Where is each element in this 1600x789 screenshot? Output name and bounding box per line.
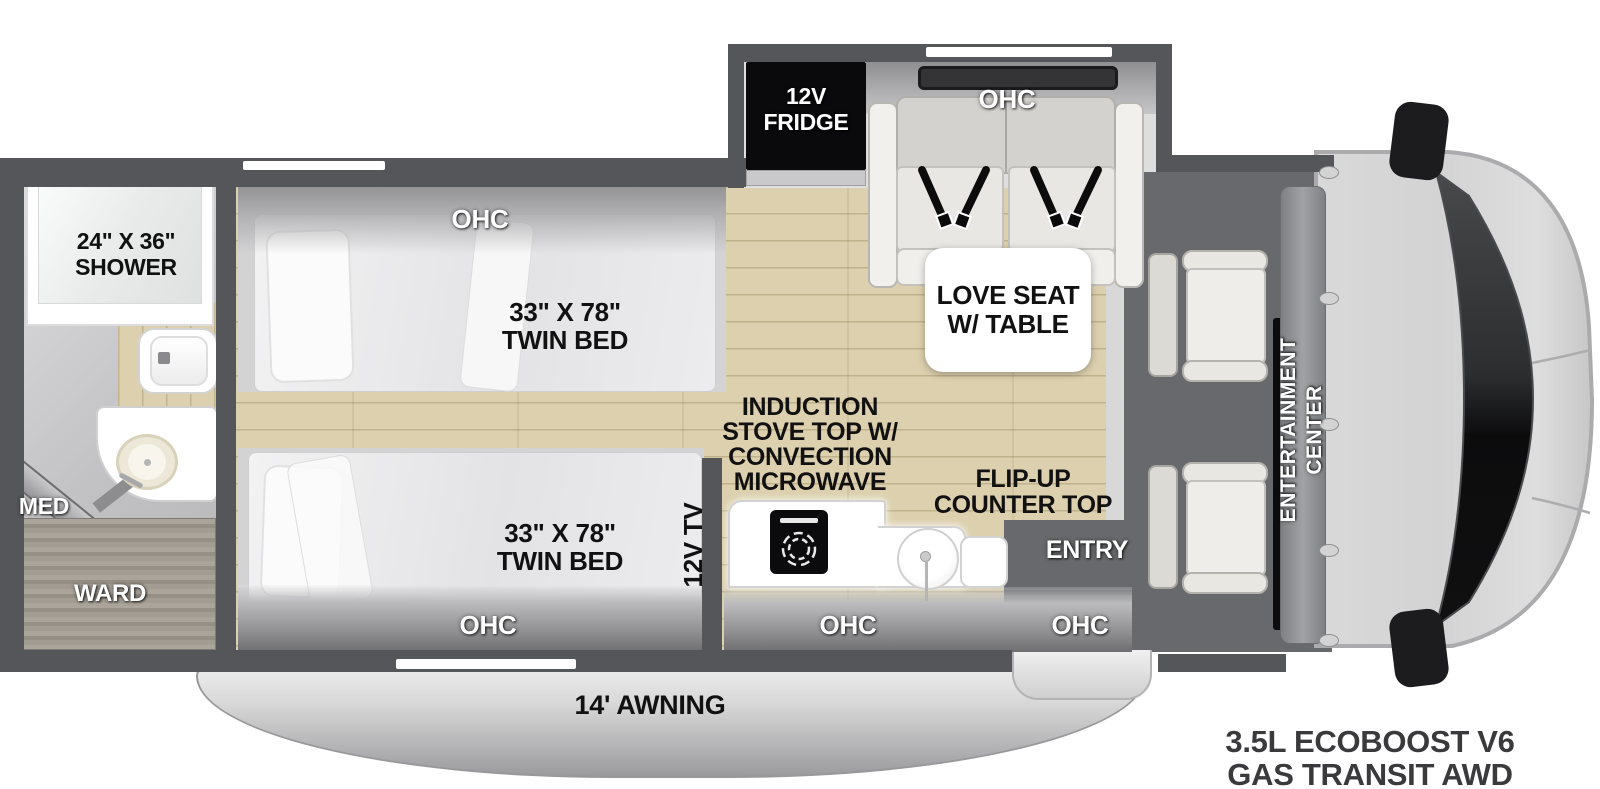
kitchen-faucet-stem [925, 561, 928, 601]
twin-bed-bottom-label: 33" X 78" TWIN BED [425, 519, 695, 575]
side-mirror-bottom-icon [1388, 607, 1451, 689]
windshield [1436, 172, 1533, 626]
wall-bathroom [216, 158, 236, 672]
window-top [243, 161, 385, 170]
window-bottom [396, 659, 576, 669]
passenger-seat-armrest [1182, 572, 1268, 594]
shower-label: 24" X 36" SHOWER [46, 228, 206, 280]
side-mirror-top-icon [1388, 100, 1451, 182]
flip-up-counter [960, 536, 1008, 588]
passenger-seat-back [1148, 465, 1178, 589]
entry-step [1012, 650, 1152, 700]
induction-stove-label: INDUCTION STOVE TOP W/ CONVECTION MICROW… [685, 395, 935, 495]
hood-seam-lower [1532, 498, 1590, 513]
rv-floorplan: LOVE SEAT W/ TABLE OHC OHC OHC OHC OHC 3… [0, 0, 1600, 789]
ohc-label-top-bed: OHC [435, 204, 525, 235]
love-seat-label: LOVE SEAT W/ TABLE [937, 281, 1080, 339]
slideout-wall-left [728, 44, 744, 188]
tv-label: 12V TV [678, 445, 706, 645]
seat-belt-icons [860, 140, 1160, 235]
entertainment-center-label: ENTERTAINMENT CENTER [1276, 212, 1330, 648]
wall-top-front [1156, 155, 1334, 172]
stove-burner-icon [770, 510, 828, 574]
driver-seat [1186, 268, 1266, 364]
driver-seat-armrest [1182, 360, 1268, 382]
engine-label: 3.5L ECOBOOST V6 GAS TRANSIT AWD [1180, 725, 1560, 789]
ohc-label-entry: OHC [1035, 610, 1125, 641]
passenger-seat [1186, 480, 1266, 576]
ohc-label-kitchen: OHC [803, 610, 893, 641]
fridge-label: 12V FRIDGE [746, 83, 866, 135]
hood-seam-upper [1532, 350, 1591, 363]
entry-label: ENTRY [1027, 536, 1147, 565]
slideout-wall-right [1156, 44, 1172, 172]
love-seat-table: LOVE SEAT W/ TABLE [925, 248, 1091, 372]
hinge-icon [1319, 166, 1339, 179]
twin-bed-top-label: 33" X 78" TWIN BED [430, 298, 700, 354]
wall-rear [0, 158, 24, 672]
wardrobe-label: WARD [48, 580, 172, 608]
window-slideout [926, 47, 1112, 57]
ohc-label-slideout: OHC [962, 84, 1052, 115]
fridge-shelf [746, 170, 866, 186]
cab-body [1316, 152, 1592, 646]
toilet-flush [158, 352, 170, 364]
flip-up-counter-label: FLIP-UP COUNTER TOP [928, 466, 1118, 518]
ohc-label-bottom-bed: OHC [443, 610, 533, 641]
driver-seat-back [1148, 253, 1178, 377]
bathroom-sink-drain [144, 459, 151, 466]
med-cabinet-label: MED [9, 493, 79, 520]
wall-bottom-front [1158, 654, 1286, 672]
awning-label: 14' AWNING [565, 690, 735, 721]
